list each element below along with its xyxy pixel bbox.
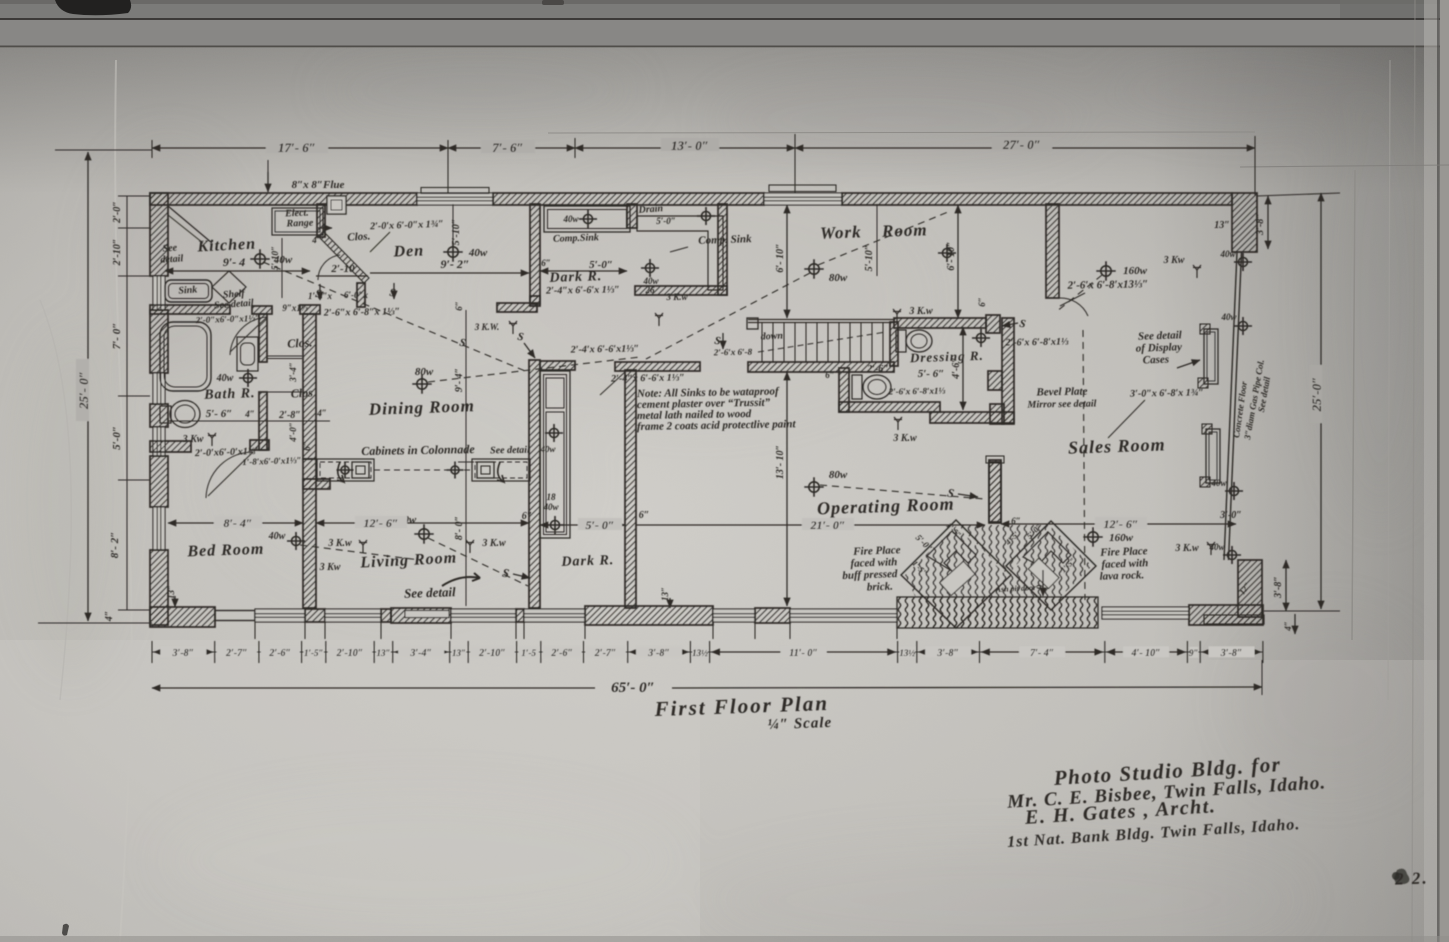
svg-text:9′- 4: 9′- 4	[223, 255, 245, 269]
svg-text:4″: 4″	[311, 235, 322, 245]
svg-text:5′-10″: 5′-10″	[451, 219, 462, 246]
svg-text:8′- 0″: 8′- 0″	[454, 516, 465, 540]
svg-text:13″: 13″	[660, 587, 670, 601]
svg-text:5′-0″: 5′-0″	[589, 259, 613, 271]
svg-text:13′- 10″: 13′- 10″	[775, 445, 786, 479]
svg-text:6″: 6″	[825, 370, 835, 380]
svg-text:12′- 6″: 12′- 6″	[1104, 517, 1139, 531]
svg-text:Work: Work	[820, 222, 862, 242]
svg-text:6′- 10″: 6′- 10″	[946, 241, 957, 270]
svg-text:9″: 9″	[1189, 648, 1199, 658]
svg-text:Range: Range	[285, 218, 314, 230]
svg-text:6″: 6″	[454, 301, 464, 311]
svg-text:40w: 40w	[1210, 478, 1227, 488]
svg-text:27′- 0″: 27′- 0″	[1002, 137, 1041, 152]
svg-text:2′-6′x 6′-8′x1⅓: 2′-6′x 6′-8′x1⅓	[888, 386, 946, 397]
svg-text:See detail: See detail	[404, 584, 457, 601]
svg-text:Clos.: Clos.	[347, 230, 371, 243]
svg-text:13½: 13½	[899, 648, 915, 658]
svg-text:5′-0″: 5′-0″	[656, 216, 676, 226]
svg-text:1′-5″: 1′-5″	[304, 648, 324, 658]
svg-text:Cases: Cases	[1143, 354, 1170, 367]
svg-text:65′- 0″: 65′- 0″	[611, 680, 655, 696]
svg-text:See detail: See detail	[490, 445, 530, 457]
svg-text:4″: 4″	[104, 611, 115, 623]
svg-text:160w: 160w	[1123, 265, 1148, 277]
svg-text:2′-6″x 6′-8″x 1⅓″: 2′-6″x 6′-8″x 1⅓″	[323, 306, 401, 318]
svg-text:2′-4′x 6′-6′x1⅓″: 2′-4′x 6′-6′x1⅓″	[570, 343, 640, 355]
svg-text:40w: 40w	[216, 373, 234, 384]
svg-text:80w: 80w	[829, 272, 848, 284]
svg-text:2′-6′x 6′-8: 2′-6′x 6′-8	[713, 347, 753, 358]
svg-text:2′-10″: 2′-10″	[112, 239, 123, 267]
svg-text:40w: 40w	[468, 247, 488, 259]
svg-text:2′-6′x 6′-8′x13⅓″: 2′-6′x 6′-8′x13⅓″	[1066, 278, 1148, 291]
svg-text:Mirror see detail: Mirror see detail	[1026, 398, 1096, 410]
svg-text:Dining Room: Dining Room	[368, 396, 476, 419]
svg-text:3 K.W.: 3 K.W.	[474, 322, 500, 332]
svg-text:7′- 4″: 7′- 4″	[1030, 648, 1054, 659]
svg-text:3′-8″: 3′-8″	[647, 648, 670, 659]
svg-text:8′- 2″: 8′- 2″	[109, 532, 121, 559]
svg-text:detail: detail	[160, 253, 184, 266]
svg-text:4″: 4″	[316, 408, 327, 418]
svg-text:9′- 4″: 9′- 4″	[454, 368, 465, 392]
svg-text:2′-6″: 2′-6″	[866, 364, 889, 375]
svg-text:3 K.w: 3 K.w	[892, 433, 917, 444]
svg-text:6″: 6″	[639, 510, 650, 521]
svg-text:lava rock.: lava rock.	[1099, 569, 1144, 583]
svg-text:down: down	[760, 330, 783, 342]
svg-text:1′-8′x6′-0′x1⅓″: 1′-8′x6′-0′x1⅓″	[242, 455, 302, 467]
svg-text:5′-10″: 5′-10″	[864, 245, 875, 272]
svg-text:6″: 6″	[302, 441, 312, 451]
svg-text:Comp.Sink: Comp.Sink	[553, 232, 599, 245]
svg-text:80w: 80w	[829, 469, 848, 481]
svg-text:3′-8″: 3′-8″	[1220, 648, 1243, 659]
svg-text:Dressing R.: Dressing R.	[909, 348, 984, 366]
svg-text:3 K.w: 3 K.w	[1174, 543, 1199, 554]
svg-text:¼″ Scale: ¼″ Scale	[767, 715, 832, 733]
svg-text:Bed Room: Bed Room	[186, 541, 264, 561]
svg-text:6′- 10″: 6′- 10″	[775, 243, 786, 272]
svg-text:40w: 40w	[562, 214, 579, 224]
svg-text:Sales Room: Sales Room	[1068, 434, 1166, 457]
svg-text:Bevel Plate: Bevel Plate	[1035, 386, 1087, 399]
svg-text:2′-6″: 2′-6″	[268, 648, 291, 659]
svg-text:2′-10″: 2′-10″	[336, 648, 364, 659]
svg-text:3 K.w: 3 K.w	[665, 292, 688, 302]
svg-text:40w: 40w	[268, 531, 286, 542]
svg-text:3 K.w: 3 K.w	[327, 538, 352, 549]
svg-text:2′-0″: 2′-0″	[112, 201, 123, 224]
svg-text:3 Kw: 3 Kw	[182, 434, 204, 445]
svg-text:12′- 6″: 12′- 6″	[364, 516, 399, 530]
svg-text:of Display: of Display	[1136, 341, 1183, 355]
svg-text:2′-6″: 2′-6″	[550, 648, 573, 659]
svg-text:4″: 4″	[1283, 621, 1293, 632]
svg-text:11′- 0″: 11′- 0″	[789, 648, 818, 659]
svg-text:40w: 40w	[542, 502, 559, 512]
svg-text:5′- 0″: 5′- 0″	[586, 518, 615, 532]
svg-text:8′- 4″: 8′- 4″	[224, 516, 253, 530]
svg-text:6″: 6″	[541, 258, 551, 268]
svg-text:Cabinets in Colonnade: Cabinets in Colonnade	[361, 442, 475, 458]
svg-text:8″x 8″Flue: 8″x 8″Flue	[292, 179, 345, 191]
svg-text:2′-7″: 2′-7″	[225, 648, 248, 659]
svg-text:Drain: Drain	[637, 203, 664, 216]
svg-text:17′- 6″: 17′- 6″	[278, 140, 316, 155]
svg-text:7′- 6″: 7′- 6″	[492, 140, 523, 155]
svg-text:Clos.: Clos.	[287, 335, 313, 350]
svg-text:Room: Room	[881, 220, 928, 241]
svg-text:See: See	[162, 242, 178, 254]
svg-text:2′-4″x 6′-6′x 1⅓″: 2′-4″x 6′-6′x 1⅓″	[545, 284, 620, 296]
svg-text:3 Kw: 3 Kw	[1163, 255, 1185, 266]
svg-text:21′- 0″: 21′- 0″	[810, 518, 846, 532]
svg-text:4′- 10″: 4′- 10″	[1131, 648, 1161, 659]
svg-text:25′- 0″: 25′- 0″	[76, 371, 91, 410]
svg-text:13′- 0″: 13′- 0″	[671, 138, 709, 153]
svg-text:13½: 13½	[692, 648, 708, 658]
svg-text:80w: 80w	[415, 366, 434, 378]
svg-text:7′- 0″: 7′- 0″	[111, 323, 123, 350]
svg-text:Sink: Sink	[178, 284, 198, 296]
svg-text:26: 26	[645, 285, 656, 295]
svg-text:25′-0″: 25′-0″	[1309, 377, 1324, 413]
svg-text:Bath R.: Bath R.	[203, 386, 256, 403]
svg-text:40w: 40w	[1220, 312, 1237, 322]
svg-text:1′-5: 1′-5	[521, 648, 536, 658]
svg-text:3 K.w: 3 K.w	[481, 538, 506, 549]
svg-text:4′-0″: 4′-0″	[288, 422, 298, 443]
svg-text:5′- 6″: 5′- 6″	[206, 408, 233, 420]
svg-text:3′-8″: 3′-8″	[1255, 213, 1266, 236]
svg-text:6″: 6″	[522, 511, 533, 522]
svg-text:3′-4″: 3′-4″	[409, 648, 432, 659]
svg-text:Clos: Clos	[290, 385, 313, 400]
svg-text:9′- 2″: 9′- 2″	[441, 257, 470, 271]
svg-text:13″: 13″	[1214, 220, 1230, 231]
svg-text:40w: 40w	[1219, 249, 1236, 259]
svg-text:9″x1⅓: 9″x1⅓	[282, 303, 307, 313]
svg-text:brick.: brick.	[867, 581, 893, 594]
svg-text:3′-0″x 6′-8′x 1¾″: 3′-0″x 6′-8′x 1¾″	[1129, 387, 1204, 399]
svg-text:5′- 6″: 5′- 6″	[918, 368, 945, 380]
svg-text:3 Kw: 3 Kw	[319, 562, 341, 573]
svg-text:3′-0″: 3′-0″	[1219, 510, 1242, 521]
svg-text:3′-4″: 3′-4″	[288, 362, 298, 383]
svg-text:3′-8″: 3′-8″	[172, 648, 195, 659]
svg-text:40w: 40w	[539, 444, 556, 454]
svg-text:3′-8″: 3′-8″	[936, 648, 959, 659]
svg-text:6′-0″x: 6′-0″x	[344, 290, 368, 300]
svg-text:13″: 13″	[376, 648, 390, 658]
svg-text:2′-7″: 2′-7″	[594, 648, 617, 659]
svg-text:Den: Den	[392, 242, 424, 260]
svg-text:2′-4″x 6′-6′x 1⅓″: 2′-4″x 6′-6′x 1⅓″	[610, 372, 685, 384]
svg-text:13″: 13″	[452, 648, 466, 658]
svg-text:2′-8″: 2′-8″	[278, 410, 301, 421]
svg-text:2′-6′x 6′-8′x1⅓: 2′-6′x 6′-8′x1⅓	[1004, 336, 1069, 348]
svg-text:6″: 6″	[1011, 516, 1021, 526]
svg-text:5′-10″: 5′-10″	[270, 246, 280, 270]
svg-text:160w: 160w	[1109, 532, 1134, 544]
svg-text:6″: 6″	[977, 297, 987, 307]
svg-text:5′-0″: 5′-0″	[111, 426, 123, 450]
svg-text:2′-10: 2′-10	[330, 263, 355, 275]
svg-text:3 K.w: 3 K.w	[908, 306, 933, 317]
svg-text:2′-10″: 2′-10″	[478, 648, 506, 659]
svg-text:18: 18	[547, 492, 557, 502]
svg-text:Comp. Sink: Comp. Sink	[698, 233, 752, 247]
svg-text:Kitchen: Kitchen	[196, 235, 256, 255]
svg-text:3′-8″: 3′-8″	[1273, 576, 1284, 599]
svg-text:4″: 4″	[244, 409, 255, 419]
svg-text:Dark R.: Dark R.	[560, 553, 614, 570]
